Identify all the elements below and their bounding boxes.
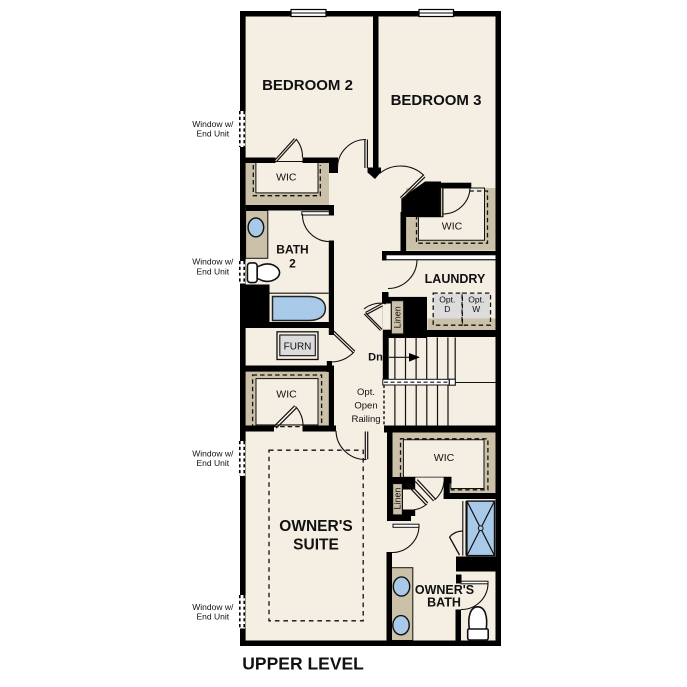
svg-text:BEDROOM 3: BEDROOM 3	[391, 92, 482, 109]
svg-text:WIC: WIC	[276, 389, 297, 401]
svg-text:Linen: Linen	[393, 306, 403, 328]
svg-text:End Unit: End Unit	[196, 458, 229, 468]
svg-text:OWNER'S: OWNER'S	[279, 518, 352, 535]
svg-text:Window w/: Window w/	[192, 449, 234, 459]
svg-text:End Unit: End Unit	[196, 267, 229, 277]
svg-text:Open: Open	[354, 401, 377, 412]
svg-text:FURN: FURN	[284, 342, 312, 353]
svg-text:SUITE: SUITE	[293, 537, 339, 554]
svg-text:Railing: Railing	[351, 414, 380, 425]
svg-text:2: 2	[289, 257, 296, 271]
svg-text:Linen: Linen	[393, 487, 403, 509]
svg-text:WIC: WIC	[442, 221, 463, 233]
svg-text:Window w/: Window w/	[192, 257, 234, 267]
svg-text:UPPER LEVEL: UPPER LEVEL	[242, 654, 364, 674]
svg-text:Dn: Dn	[368, 352, 383, 364]
svg-text:BATH: BATH	[276, 243, 308, 257]
svg-text:Opt.: Opt.	[468, 295, 484, 305]
svg-text:End Unit: End Unit	[196, 129, 229, 139]
svg-text:Opt.: Opt.	[357, 387, 375, 398]
svg-text:Window w/: Window w/	[192, 602, 234, 612]
svg-text:WIC: WIC	[276, 172, 297, 184]
svg-text:BATH: BATH	[427, 596, 461, 610]
svg-text:Opt.: Opt.	[439, 295, 455, 305]
svg-text:End Unit: End Unit	[196, 612, 229, 622]
svg-text:WIC: WIC	[434, 452, 455, 464]
svg-text:LAUNDRY: LAUNDRY	[425, 272, 486, 286]
svg-text:BEDROOM 2: BEDROOM 2	[262, 77, 353, 94]
svg-text:Window w/: Window w/	[192, 119, 234, 129]
svg-text:D: D	[444, 304, 450, 314]
svg-text:W: W	[472, 304, 480, 314]
